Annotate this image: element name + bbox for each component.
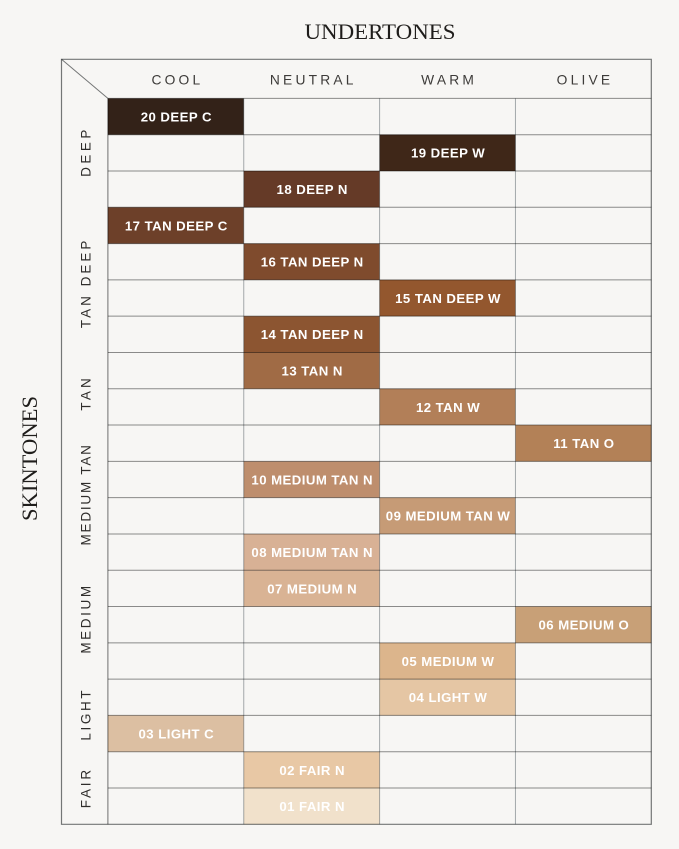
svg-text:04 LIGHT W: 04 LIGHT W	[409, 690, 488, 705]
svg-text:SKINTONES: SKINTONES	[17, 396, 42, 521]
svg-text:TAN: TAN	[79, 375, 94, 411]
svg-text:DEEP: DEEP	[79, 126, 94, 177]
svg-text:WARM: WARM	[421, 73, 477, 88]
svg-text:13 TAN N: 13 TAN N	[282, 364, 343, 379]
svg-text:12 TAN W: 12 TAN W	[416, 400, 480, 415]
svg-text:MEDIUM TAN: MEDIUM TAN	[79, 443, 94, 545]
svg-text:03 LIGHT C: 03 LIGHT C	[139, 726, 215, 741]
svg-text:COOL: COOL	[151, 73, 203, 88]
svg-text:18 DEEP N: 18 DEEP N	[277, 182, 348, 197]
svg-text:06 MEDIUM O: 06 MEDIUM O	[539, 618, 630, 633]
svg-text:TAN DEEP: TAN DEEP	[79, 238, 94, 329]
svg-text:14 TAN DEEP N: 14 TAN DEEP N	[261, 327, 364, 342]
svg-text:11 TAN O: 11 TAN O	[553, 436, 614, 451]
svg-text:17 TAN DEEP C: 17 TAN DEEP C	[125, 218, 228, 233]
svg-text:UNDERTONES: UNDERTONES	[305, 19, 456, 44]
svg-text:07 MEDIUM N: 07 MEDIUM N	[267, 581, 357, 596]
svg-text:19 DEEP W: 19 DEEP W	[411, 146, 485, 161]
svg-text:09 MEDIUM TAN W: 09 MEDIUM TAN W	[386, 509, 511, 524]
svg-text:MEDIUM: MEDIUM	[79, 583, 94, 653]
svg-text:08 MEDIUM TAN N: 08 MEDIUM TAN N	[251, 545, 373, 560]
svg-text:NEUTRAL: NEUTRAL	[270, 73, 357, 88]
svg-text:10 MEDIUM TAN N: 10 MEDIUM TAN N	[251, 472, 373, 487]
svg-text:FAIR: FAIR	[79, 767, 94, 808]
svg-text:05 MEDIUM W: 05 MEDIUM W	[402, 654, 495, 669]
svg-text:02 FAIR N: 02 FAIR N	[279, 763, 345, 778]
svg-text:OLIVE: OLIVE	[557, 73, 614, 88]
svg-text:20 DEEP C: 20 DEEP C	[141, 109, 212, 124]
svg-text:LIGHT: LIGHT	[79, 688, 94, 741]
svg-text:16 TAN DEEP N: 16 TAN DEEP N	[261, 255, 364, 270]
svg-text:01 FAIR N: 01 FAIR N	[279, 799, 345, 814]
svg-text:15 TAN DEEP W: 15 TAN DEEP W	[395, 291, 501, 306]
